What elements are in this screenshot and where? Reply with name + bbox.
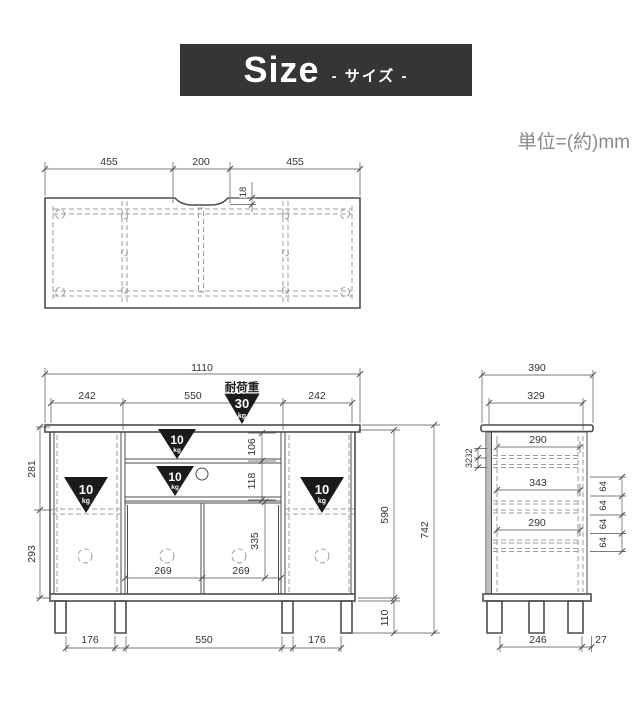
side-legs bbox=[487, 601, 583, 633]
dim-550-center: 550 bbox=[184, 390, 202, 402]
dim-269-left: 269 bbox=[154, 565, 172, 577]
dim-550-bottom: 550 bbox=[195, 634, 213, 646]
dim-329: 329 bbox=[527, 390, 545, 402]
side-top-board bbox=[481, 425, 593, 432]
load-heading: 耐荷重 bbox=[225, 380, 260, 394]
dim-246: 246 bbox=[529, 634, 547, 646]
dim-32-bottom: 32 bbox=[464, 458, 474, 468]
load-unit: kg bbox=[318, 498, 326, 505]
dim-106: 106 bbox=[246, 438, 258, 456]
dim-64-3: 64 bbox=[598, 519, 609, 530]
drawer-hole bbox=[196, 468, 208, 480]
dim-742: 742 bbox=[419, 521, 431, 539]
front-top-board bbox=[45, 425, 360, 432]
dim-290-lower: 290 bbox=[528, 517, 546, 529]
load-unit: kg bbox=[171, 484, 179, 491]
dim-1110: 1110 bbox=[191, 362, 213, 374]
dim-118: 118 bbox=[246, 472, 258, 489]
load-triangle-open-shelf-10kg: 10 kg bbox=[158, 429, 196, 459]
dim-343: 343 bbox=[529, 477, 547, 489]
top-view: 455 200 455 18 bbox=[42, 156, 363, 308]
dim-64-4: 64 bbox=[598, 537, 609, 548]
side-hidden-lines bbox=[493, 436, 583, 592]
dim-242-right: 242 bbox=[308, 390, 326, 402]
load-value: 10 bbox=[79, 482, 93, 497]
dim-176-right: 176 bbox=[308, 634, 326, 646]
load-triangle-left-door-10kg: 10 kg bbox=[64, 477, 108, 513]
dim-27: 27 bbox=[595, 634, 607, 646]
load-unit: kg bbox=[82, 498, 90, 505]
dim-269-right: 269 bbox=[232, 565, 250, 577]
side-front-edge bbox=[487, 432, 492, 594]
side-bottom-board bbox=[483, 594, 591, 601]
load-value: 10 bbox=[170, 433, 184, 447]
dim-110: 110 bbox=[379, 609, 391, 626]
dim-top-455-left: 455 bbox=[100, 156, 118, 168]
dim-32-top: 32 bbox=[464, 448, 474, 458]
dim-top-455-right: 455 bbox=[286, 156, 304, 168]
load-triangle-drawer-10kg: 10 kg bbox=[156, 466, 194, 496]
load-value: 10 bbox=[168, 470, 182, 484]
side-view: 390 329 290 32 32 343 64 64 64 64 290 24… bbox=[464, 362, 626, 652]
load-triangle-top-30kg: 30 kg bbox=[224, 393, 260, 424]
load-value: 30 bbox=[235, 396, 249, 411]
dim-64-1: 64 bbox=[598, 481, 609, 492]
front-side-walls bbox=[50, 432, 355, 594]
dim-281: 281 bbox=[26, 460, 38, 478]
top-view-corner-details bbox=[56, 210, 350, 297]
dim-242-left: 242 bbox=[78, 390, 96, 402]
front-bottom-board bbox=[50, 594, 355, 601]
dim-293: 293 bbox=[26, 545, 38, 563]
top-view-hidden-lines bbox=[53, 201, 352, 305]
front-inner-structure bbox=[50, 432, 355, 594]
dim-64-2: 64 bbox=[598, 500, 609, 511]
dim-590: 590 bbox=[379, 506, 391, 524]
dim-390: 390 bbox=[528, 362, 546, 374]
front-legs bbox=[55, 601, 352, 633]
dim-335: 335 bbox=[249, 532, 261, 550]
dim-176-left: 176 bbox=[81, 634, 99, 646]
dim-290-upper: 290 bbox=[529, 434, 547, 446]
dim-notch-18: 18 bbox=[238, 187, 249, 198]
load-value: 10 bbox=[315, 482, 329, 497]
load-triangle-right-door-10kg: 10 kg bbox=[300, 477, 344, 513]
load-unit: kg bbox=[238, 413, 246, 420]
front-view: 30 kg 10 kg 10 kg 10 kg 10 kg 耐荷重 1110 2… bbox=[26, 362, 440, 652]
dim-top-200: 200 bbox=[192, 156, 210, 168]
load-unit: kg bbox=[173, 447, 181, 454]
top-view-dimension-ticks bbox=[42, 166, 363, 208]
dimension-drawing: 455 200 455 18 30 kg 10 kg bbox=[0, 0, 640, 713]
